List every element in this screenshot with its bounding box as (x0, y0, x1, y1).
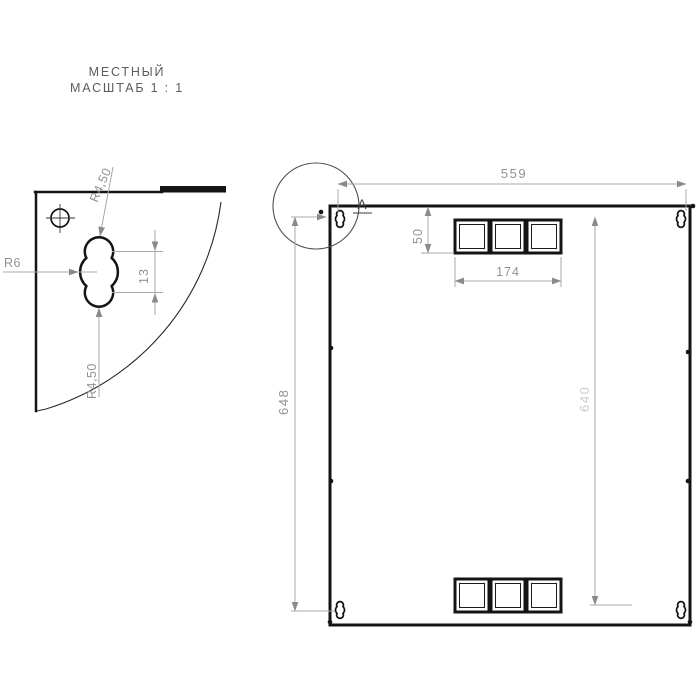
dim-640: 640 (577, 217, 632, 605)
local-view-title-line2: МАСШТАБ 1 : 1 (70, 81, 184, 95)
drawing-svg: МЕСТНЫЙ МАСШТАБ 1 : 1 R4,50 R6 13 R4,50 (0, 0, 700, 700)
corner-dot-bottom-right (688, 620, 693, 625)
detail-flange-edge (160, 186, 226, 193)
corner-keyhole-top-left (335, 211, 344, 228)
local-detail-view: МЕСТНЫЙ МАСШТАБ 1 : 1 R4,50 R6 13 R4,50 (3, 64, 226, 411)
bottom-slot-group (455, 579, 561, 612)
dim-174-text: 174 (496, 265, 520, 279)
corner-dot-bottom-left (328, 620, 333, 625)
dim-640-text: 640 (577, 386, 592, 413)
dim-174: 174 (455, 257, 561, 287)
detail-callout-label: А (357, 197, 366, 212)
corner-keyhole-bottom-right (676, 602, 685, 619)
dim-648: 648 (276, 217, 335, 611)
cad-drawing-canvas: МЕСТНЫЙ МАСШТАБ 1 : 1 R4,50 R6 13 R4,50 (0, 0, 700, 700)
dim-50: 50 (411, 207, 454, 253)
top-slot-group (455, 220, 561, 253)
dim-648-text: 648 (276, 389, 291, 416)
dim-50-text: 50 (411, 228, 425, 244)
dim-559-text: 559 (501, 166, 528, 181)
dim-r450-top: R4,50 (87, 166, 114, 204)
main-panel-view: А (273, 163, 695, 625)
corner-dot-top-right (691, 204, 696, 209)
bottom-slot-1-inner (460, 584, 485, 608)
dim-13-text: 13 (137, 268, 151, 284)
dim-559-extension-lines (338, 189, 686, 212)
top-slot-3-inner (532, 225, 557, 249)
dim-r6: R6 (4, 256, 21, 270)
edge-dot-left-upper (329, 346, 334, 351)
top-slot-1-inner (460, 225, 485, 249)
edge-dot-right-lower (686, 479, 691, 484)
dim-r450-bottom: R4,50 (85, 363, 99, 399)
corner-keyhole-top-right (676, 211, 685, 228)
edge-dot-right-upper (686, 350, 691, 355)
bottom-slot-3-inner (532, 584, 557, 608)
edge-dot-left-lower (329, 479, 334, 484)
corner-dot-top-left (319, 210, 324, 215)
local-view-title-line1: МЕСТНЫЙ (89, 64, 166, 79)
top-slot-2-inner (496, 225, 521, 249)
detail-break-arc (37, 202, 221, 411)
corner-keyhole-bottom-left (335, 602, 344, 619)
bottom-slot-2-inner (496, 584, 521, 608)
